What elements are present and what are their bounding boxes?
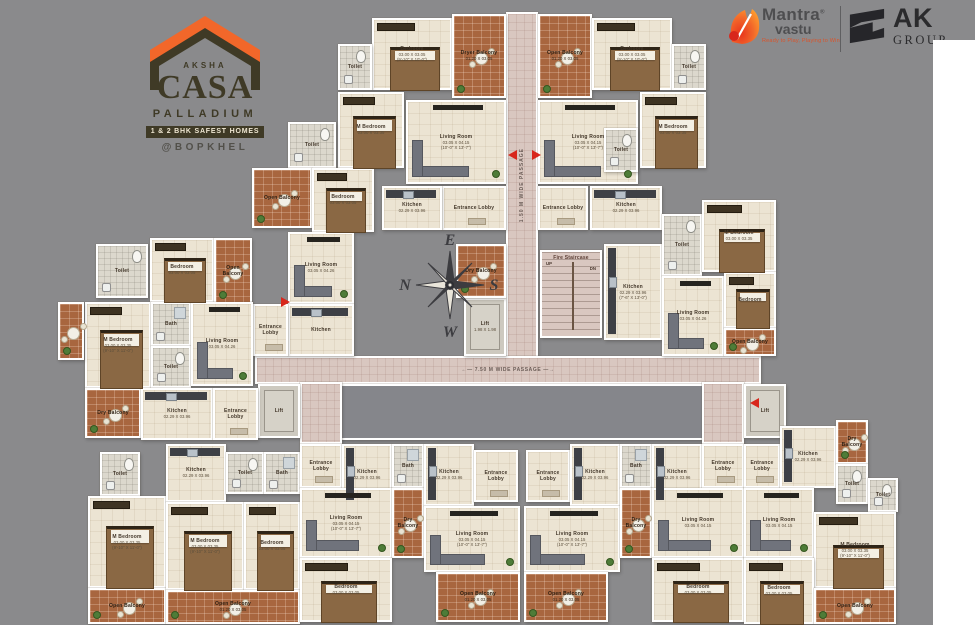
plant-furniture xyxy=(800,544,808,552)
basin-furniture xyxy=(294,153,303,162)
room-label: Toilet xyxy=(682,64,696,70)
room-label: Bedroom xyxy=(738,297,761,303)
room-toilet-b2: Toilet xyxy=(604,128,638,172)
chair-furniture xyxy=(845,611,852,618)
compass-west-label: W xyxy=(443,324,459,341)
shower-furniture xyxy=(635,449,647,461)
room-bath-u6r: Bath xyxy=(620,444,652,488)
room-label: Open Balcony xyxy=(732,339,768,345)
tv-unit-furniture xyxy=(209,307,240,312)
room-lobby-b: Entrance Lobby xyxy=(538,186,588,230)
sofa-furniture xyxy=(544,140,555,177)
room-label: Entrance Lobby xyxy=(529,470,567,482)
basin-furniture xyxy=(232,479,241,488)
wc-furniture xyxy=(124,458,134,471)
room-label: Fire Staircase xyxy=(553,255,589,261)
room-m-bedroom-br: M Bedroom03.00 X 03.35(9'-10" X 11'-0") xyxy=(814,512,896,588)
plant-furniture xyxy=(340,290,348,298)
shower-furniture xyxy=(407,449,419,461)
room-dimensions: (9'-10" X 11'-0") xyxy=(112,545,142,550)
tv-unit-furniture xyxy=(450,511,498,516)
plant-furniture xyxy=(543,85,551,93)
wc-furniture xyxy=(690,50,700,63)
chair-furniture xyxy=(61,336,68,343)
room-dimensions: (9'-10" X 11'-0") xyxy=(103,348,133,353)
room-living-f: Living Room03.05 X 04.15(10'-0" X 13'-7"… xyxy=(424,506,520,572)
tv-unit-furniture xyxy=(565,105,615,110)
room-dimensions: 03.00 X 03.05 xyxy=(330,200,357,205)
doormat-furniture xyxy=(468,218,486,225)
wardrobe-furniture xyxy=(657,563,700,571)
room-dimensions: 03.05 X 04.26 xyxy=(209,344,236,349)
entry-arrow-icon xyxy=(281,297,290,307)
plant-furniture xyxy=(457,85,465,93)
room-label: Toilet xyxy=(164,364,178,370)
tv-unit-furniture xyxy=(307,237,340,242)
room-living-d: Living Room03.05 X 04.26 xyxy=(191,302,253,386)
shower-furniture xyxy=(283,457,295,469)
doormat-furniture xyxy=(265,344,283,351)
stair-rail-furniture xyxy=(572,262,574,330)
room-dimensions: 03.00 X 03.35 xyxy=(660,130,687,135)
room-passage-stub-right xyxy=(702,382,744,444)
room-dimensions: (9'-10" X 10'-0") xyxy=(397,57,427,62)
room-dimensions: (10'-0" X 13'-7") xyxy=(557,542,587,547)
plant-furniture xyxy=(63,347,71,355)
basin-furniture xyxy=(874,497,883,506)
sofa-furniture xyxy=(750,520,761,551)
sofa-furniture xyxy=(658,520,669,551)
room-dry-balcony-d: Dry Balcony xyxy=(85,388,141,438)
doormat-furniture xyxy=(557,218,575,225)
room-label: Bath xyxy=(402,463,414,469)
mantra-vastu-logo: Mantra® vastu Ready to Play, Playing to … xyxy=(726,6,840,48)
room-dimensions: 03.05 X 04.26 xyxy=(680,316,707,321)
plant-furniture xyxy=(441,609,449,617)
sink-furniture xyxy=(615,191,626,199)
room-label: Bath xyxy=(630,463,642,469)
room-living-g: Living Room03.05 X 04.15(10'-0" X 13'-7"… xyxy=(524,506,620,572)
room-dimensions: 01.20 X 03.05 xyxy=(220,607,247,612)
wc-furniture xyxy=(686,220,696,233)
room-dimensions: (9'-10" X 11'-0") xyxy=(840,553,870,558)
room-bedroom-r: Bedroom xyxy=(724,272,776,328)
sink-furniture xyxy=(785,448,793,459)
room-open-balcony-w1: Open Balcony xyxy=(88,588,166,624)
room-dimensions: 02.29 X 03.96 xyxy=(795,457,822,462)
room-bedroom-u6: Bedroom03.00 X 03.05 xyxy=(300,558,392,622)
chair-furniture xyxy=(272,203,279,210)
shower-furniture xyxy=(174,307,186,319)
chair-furniture xyxy=(103,418,110,425)
sink-furniture xyxy=(311,309,322,317)
room-dry-balcony-br: Dry Balcony xyxy=(836,420,868,464)
room-lobby-br: Entrance Lobby xyxy=(744,444,780,488)
doormat-furniture xyxy=(490,490,508,497)
room-dimensions: 02.29 X 03.96 xyxy=(164,414,191,419)
brand-name: CASA xyxy=(138,71,272,105)
vastu-wordmark: vastu xyxy=(775,22,840,36)
room-label: Open Balcony xyxy=(217,265,249,277)
room-bedroom-c: Bedroom03.00 X 03.05 xyxy=(312,168,374,232)
room-bedroom-b: Bedroom03.00 X 03.05(9'-10" X 10'-0") xyxy=(592,18,672,90)
room-label: Entrance Lobby xyxy=(477,470,515,482)
basin-furniture xyxy=(625,474,634,483)
room-label: Dry Balcony xyxy=(623,517,650,529)
chair-furniture xyxy=(398,528,405,535)
room-label: Entrance Lobby xyxy=(256,324,285,336)
room-dimensions: (7'-6" X 13'-0") xyxy=(619,295,647,300)
sink-furniture xyxy=(609,277,617,288)
room-lobby-a: Entrance Lobby xyxy=(442,186,506,230)
room-lobby-c: Entrance Lobby xyxy=(253,304,288,356)
room-dimensions: 02.29 X 03.96 xyxy=(354,475,381,480)
chair-furniture xyxy=(556,602,563,609)
room-passage-stub-left xyxy=(300,382,342,444)
room-lobby-f: Entrance Lobby xyxy=(474,450,518,502)
sofa-furniture xyxy=(294,265,305,297)
ak-group-mark-icon xyxy=(848,5,886,47)
plant-furniture xyxy=(492,170,500,178)
room-fire-staircase: Fire StaircaseUPDN xyxy=(540,250,602,338)
room-void-center xyxy=(340,384,704,440)
room-label: Open Balcony xyxy=(264,195,300,201)
room-toilet-br: Toilet xyxy=(836,464,868,504)
basin-furniture xyxy=(668,261,677,270)
sink-furniture xyxy=(166,393,177,401)
wardrobe-furniture xyxy=(171,507,208,515)
wardrobe-furniture xyxy=(249,507,276,515)
room-living-a: Living Room03.05 X 04.15(10'-0" X 13'-7"… xyxy=(406,100,506,184)
room-dimensions: (9'-10" X 10'-0") xyxy=(617,57,647,62)
wardrobe-furniture xyxy=(343,97,375,105)
room-toilet-c: Toilet xyxy=(288,122,336,168)
basin-furniture xyxy=(344,75,353,84)
stair-down-label: DN xyxy=(590,266,596,271)
wc-furniture xyxy=(622,134,632,147)
room-dimensions: 03.00 X 03.05 xyxy=(169,270,196,275)
room-open-balcony-g: Open Balcony01.20 X 03.05 xyxy=(524,572,608,622)
plant-furniture xyxy=(624,170,632,178)
plant-furniture xyxy=(90,425,98,433)
room-bedroom-u5: Bedroom03.00 X 03.05 xyxy=(244,502,300,590)
room-dryer-balcony-a: Dryer Balcony01.20 X 03.05 xyxy=(452,14,506,98)
mantra-flame-icon xyxy=(726,6,760,48)
logo-divider xyxy=(840,6,841,52)
basin-furniture xyxy=(678,75,687,84)
room-dimensions: 02.29 X 03.96 xyxy=(183,473,210,478)
chair-furniture xyxy=(223,276,230,283)
room-m-bedroom-u5: M Bedroom03.00 X 03.35(9'-10" X 11'-0") xyxy=(166,502,244,590)
room-lobby-u6r: Entrance Lobby xyxy=(702,444,744,488)
room-toilet-d: Toilet xyxy=(96,244,148,298)
room-label: Toilet xyxy=(113,471,127,477)
room-dimensions: 03.00 X 03.35 xyxy=(726,236,753,241)
plant-furniture xyxy=(625,545,633,553)
aksha-casa-logo: AKSHA CASA PALLADIUM 1 & 2 BHK SAFEST HO… xyxy=(138,16,272,153)
plant-furniture xyxy=(506,558,514,566)
room-m-bedroom-r: M Bedroom03.00 X 03.35 xyxy=(702,200,776,272)
room-kitchen-r: Kitchen02.29 X 03.96(7'-6" X 13'-0") xyxy=(604,244,662,340)
sofa-furniture xyxy=(306,520,317,551)
chair-furniture xyxy=(80,323,87,330)
room-label: Kitchen xyxy=(311,327,331,333)
bhk-badge: 1 & 2 BHK SAFEST HOMES xyxy=(146,126,265,138)
wardrobe-furniture xyxy=(597,23,635,31)
room-label: Dry Balcony xyxy=(395,517,422,529)
room-dimensions: 02.29 X 03.96 xyxy=(664,475,691,480)
plant-furniture xyxy=(219,291,227,299)
room-dimensions: (10'-0" X 13'-7") xyxy=(331,526,361,531)
room-label: Open Balcony xyxy=(837,603,873,609)
chair-furniture xyxy=(223,612,230,619)
room-dimensions: 03.00 X 03.35 xyxy=(358,130,385,135)
room-dimensions: 03.05 X 04.26 xyxy=(308,268,335,273)
doormat-furniture xyxy=(717,476,735,483)
room-bath-u5: Bath xyxy=(264,452,300,494)
wc-furniture xyxy=(356,50,366,63)
plant-furniture xyxy=(93,611,101,619)
room-dimensions: 02.29 X 03.96 xyxy=(436,475,463,480)
room-living-u6r: Living Room03.05 X 04.15 xyxy=(652,488,744,558)
wardrobe-furniture xyxy=(819,517,858,525)
plant-furniture xyxy=(171,611,179,619)
doormat-furniture xyxy=(230,428,248,435)
room-lobby-u6: Entrance Lobby xyxy=(300,444,342,488)
ak-wordmark: AK xyxy=(893,5,948,32)
room-label: Entrance Lobby xyxy=(216,408,255,420)
room-toilet-d2: Toilet xyxy=(151,346,191,388)
room-dry-balcony-u6r: Dry Balcony xyxy=(620,488,652,558)
room-kitchen-g: Kitchen02.29 X 03.96 xyxy=(570,444,620,506)
sofa-furniture xyxy=(430,535,441,565)
room-open-balcony-d: Open Balcony xyxy=(214,238,252,304)
room-open-balcony-b: Open Balcony01.20 X 03.05 xyxy=(538,14,592,98)
doormat-furniture xyxy=(756,476,774,483)
compass-rose: E S W N xyxy=(390,225,510,345)
basin-furniture xyxy=(157,373,166,382)
room-dimensions: 01.20 X 03.05 xyxy=(465,597,492,602)
wardrobe-furniture xyxy=(317,173,347,181)
room-passage-horizontal: ←— 7.50 M WIDE PASSAGE —→ xyxy=(255,356,761,384)
room-label: Dry Balcony xyxy=(97,410,128,416)
room-open-balcony-u5: Open Balcony01.20 X 03.05 xyxy=(166,590,300,624)
tv-unit-furniture xyxy=(677,493,723,498)
room-dimensions: 01.20 X 03.05 xyxy=(553,597,580,602)
room-dimensions: 03.00 X 03.05 xyxy=(333,590,360,595)
room-label: Lift xyxy=(275,408,284,414)
room-lobby-g: Entrance Lobby xyxy=(526,450,570,502)
room-label: Toilet xyxy=(845,481,859,487)
chair-furniture xyxy=(469,61,476,68)
room-kitchen-d: Kitchen02.29 X 03.96 xyxy=(141,388,213,440)
chair-furniture xyxy=(117,611,124,618)
room-label: Entrance Lobby xyxy=(303,460,339,472)
basin-furniture xyxy=(269,480,278,489)
room-dimensions: 02.29 X 03.96 xyxy=(582,475,609,480)
chair-furniture xyxy=(468,602,475,609)
room-lift-left: Lift xyxy=(258,384,300,438)
sofa-furniture xyxy=(197,342,208,379)
plant-furniture xyxy=(529,609,537,617)
room-kitchen-br: Kitchen02.29 X 03.96 xyxy=(780,426,836,488)
room-lobby-d: Entrance Lobby xyxy=(213,388,258,440)
room-living-br: Living Room03.05 X 04.15 xyxy=(744,488,814,558)
room-dimensions: 02.29 X 03.96 xyxy=(613,208,640,213)
room-dimensions: (9'-10" X 11'-0") xyxy=(190,549,220,554)
room-toilet-u5: Toilet xyxy=(226,452,264,494)
room-bath-u6: Bath xyxy=(392,444,424,488)
registered-mark-icon: ® xyxy=(820,9,825,15)
basin-furniture xyxy=(156,332,165,341)
room-dimensions: (10'-0" X 13'-7") xyxy=(457,542,487,547)
plant-furniture xyxy=(257,215,265,223)
sofa-furniture xyxy=(668,313,679,349)
room-label: Toilet xyxy=(348,64,362,70)
plant-furniture xyxy=(606,558,614,566)
doormat-furniture xyxy=(315,476,333,483)
wardrobe-furniture xyxy=(707,205,742,213)
wc-furniture xyxy=(320,128,330,141)
room-living-c: Living Room03.05 X 04.26 xyxy=(288,232,354,304)
plant-furniture xyxy=(397,545,405,553)
room-dimensions: 03.00 X 03.05 xyxy=(766,591,793,596)
location-label: @BOPKHEL xyxy=(138,142,272,153)
room-m-bedroom-a: M Bedroom03.00 X 03.35 xyxy=(338,92,404,168)
room-kitchen-c: Kitchen xyxy=(288,304,354,356)
room-kitchen-u5: Kitchen02.29 X 03.96 xyxy=(166,444,226,502)
project-name: PALLADIUM xyxy=(138,108,272,120)
room-label: 1.50 M WIDE PASSAGE xyxy=(519,148,525,222)
chair-furniture xyxy=(740,347,747,354)
room-bath-d: Bath xyxy=(151,302,191,346)
basin-furniture xyxy=(610,157,619,166)
room-dimensions: 01.20 X 03.05 xyxy=(552,56,579,61)
room-label: Entrance Lobby xyxy=(705,460,741,472)
room-label: Toilet xyxy=(675,242,689,248)
tv-unit-furniture xyxy=(325,493,371,498)
doormat-furniture xyxy=(542,490,560,497)
plant-furniture xyxy=(378,544,386,552)
room-label: Toilet xyxy=(238,470,252,476)
room-label: Bath xyxy=(276,470,288,476)
room-kitchen-a: Kitchen02.29 X 03.96 xyxy=(382,186,442,230)
table-furniture xyxy=(67,327,80,340)
wardrobe-furniture xyxy=(90,307,122,315)
room-label: Lift xyxy=(761,408,770,414)
chair-furniture xyxy=(555,61,562,68)
room-kitchen-b: Kitchen02.29 X 03.96 xyxy=(590,186,662,230)
wardrobe-furniture xyxy=(93,501,130,509)
room-open-balcony-br: Open Balcony xyxy=(814,588,896,624)
room-label: Toilet xyxy=(614,147,628,153)
room-passage-vertical: 1.50 M WIDE PASSAGE xyxy=(506,12,538,358)
room-dimensions: 03.00 X 03.05 xyxy=(259,546,286,551)
tv-unit-furniture xyxy=(550,511,598,516)
room-label: Entrance Lobby xyxy=(747,460,777,472)
room-label: Toilet xyxy=(305,142,319,148)
sofa-furniture xyxy=(412,140,423,177)
room-dimensions: 02.29 X 03.96 xyxy=(399,208,426,213)
plant-furniture xyxy=(239,372,247,380)
room-dimensions: 01.20 X 03.05 xyxy=(466,56,493,61)
room-bedroom-br: Bedroom03.00 X 03.05 xyxy=(744,558,814,624)
sink-furniture xyxy=(187,449,198,457)
plant-furniture xyxy=(730,544,738,552)
stair-up-label: UP xyxy=(546,261,552,266)
room-dimensions: 03.05 X 04.15 xyxy=(685,523,712,528)
tv-unit-furniture xyxy=(764,493,799,498)
room-toilet-br2: Toilet xyxy=(868,478,898,512)
room-label: Entrance Lobby xyxy=(454,205,495,211)
room-m-bedroom-d: M Bedroom03.00 X 03.35(9'-10" X 11'-0") xyxy=(85,302,151,388)
room-dimensions: 03.00 X 03.05 xyxy=(685,590,712,595)
room-bedroom-a: Bedroom03.00 X 03.05(9'-10" X 10'-0") xyxy=(372,18,452,90)
compass-north-label: N xyxy=(398,277,412,294)
room-label: Toilet xyxy=(115,268,129,274)
basin-furniture xyxy=(842,489,851,498)
compass-south-label: S xyxy=(490,277,499,294)
chair-furniture xyxy=(626,528,633,535)
sink-furniture xyxy=(403,191,414,199)
basin-furniture xyxy=(397,474,406,483)
wardrobe-furniture xyxy=(305,563,348,571)
tv-unit-furniture xyxy=(433,105,483,110)
entry-arrow-icon xyxy=(750,398,759,408)
room-open-balcony-c: Open Balcony xyxy=(252,168,312,228)
room-toilet-a: Toilet xyxy=(338,44,372,90)
floor-plan-poster: 1.50 M WIDE PASSAGE←— 7.50 M WIDE PASSAG… xyxy=(0,0,975,625)
bed-furniture xyxy=(736,289,770,329)
wc-furniture xyxy=(132,250,142,263)
tv-unit-furniture xyxy=(680,281,711,286)
room-label: Toilet xyxy=(876,492,890,498)
room-toilet-b: Toilet xyxy=(672,44,706,90)
room-kitchen-f: Kitchen02.29 X 03.96 xyxy=(424,444,474,506)
room-m-bedroom-b: M Bedroom03.00 X 03.35 xyxy=(640,92,706,168)
mantra-tagline: Ready to Play, Playing to Win xyxy=(762,39,840,45)
room-open-balcony-west xyxy=(58,302,84,360)
right-white-strip xyxy=(933,40,975,625)
kitchen-counter-furniture xyxy=(608,248,616,334)
plant-furniture xyxy=(819,611,827,619)
plant-furniture xyxy=(841,451,849,459)
basin-furniture xyxy=(102,283,111,292)
room-dimensions: 03.05 X 04.15 xyxy=(766,523,793,528)
room-toilet-w1: Toilet xyxy=(100,452,140,496)
wardrobe-furniture xyxy=(155,243,186,251)
room-m-bedroom-w1: M Bedroom03.00 X 03.35(9'-10" X 11'-0") xyxy=(88,496,166,588)
basin-furniture xyxy=(106,481,115,490)
wardrobe-furniture xyxy=(377,23,415,31)
wardrobe-furniture xyxy=(729,277,754,285)
room-bedroom-d: Bedroom03.00 X 03.05 xyxy=(150,238,214,302)
room-open-balcony-r: Open Balcony xyxy=(724,328,776,356)
wardrobe-furniture xyxy=(645,97,677,105)
plant-furniture xyxy=(710,342,718,350)
entry-arrow-icon xyxy=(508,150,517,160)
room-lift-right: Lift xyxy=(744,384,786,438)
room-dimensions: (10'-0" X 13'-7") xyxy=(441,145,471,150)
room-label: Dry Balcony xyxy=(839,436,866,448)
sofa-furniture xyxy=(530,535,541,565)
room-label: Entrance Lobby xyxy=(543,205,584,211)
room-bedroom-u6r: Bedroom03.00 X 03.05 xyxy=(652,558,744,622)
wardrobe-furniture xyxy=(749,563,783,571)
room-label: Open Balcony xyxy=(109,603,145,609)
room-label: ←— 7.50 M WIDE PASSAGE —→ xyxy=(462,367,555,373)
room-living-r: Living Room03.05 X 04.26 xyxy=(662,276,724,356)
